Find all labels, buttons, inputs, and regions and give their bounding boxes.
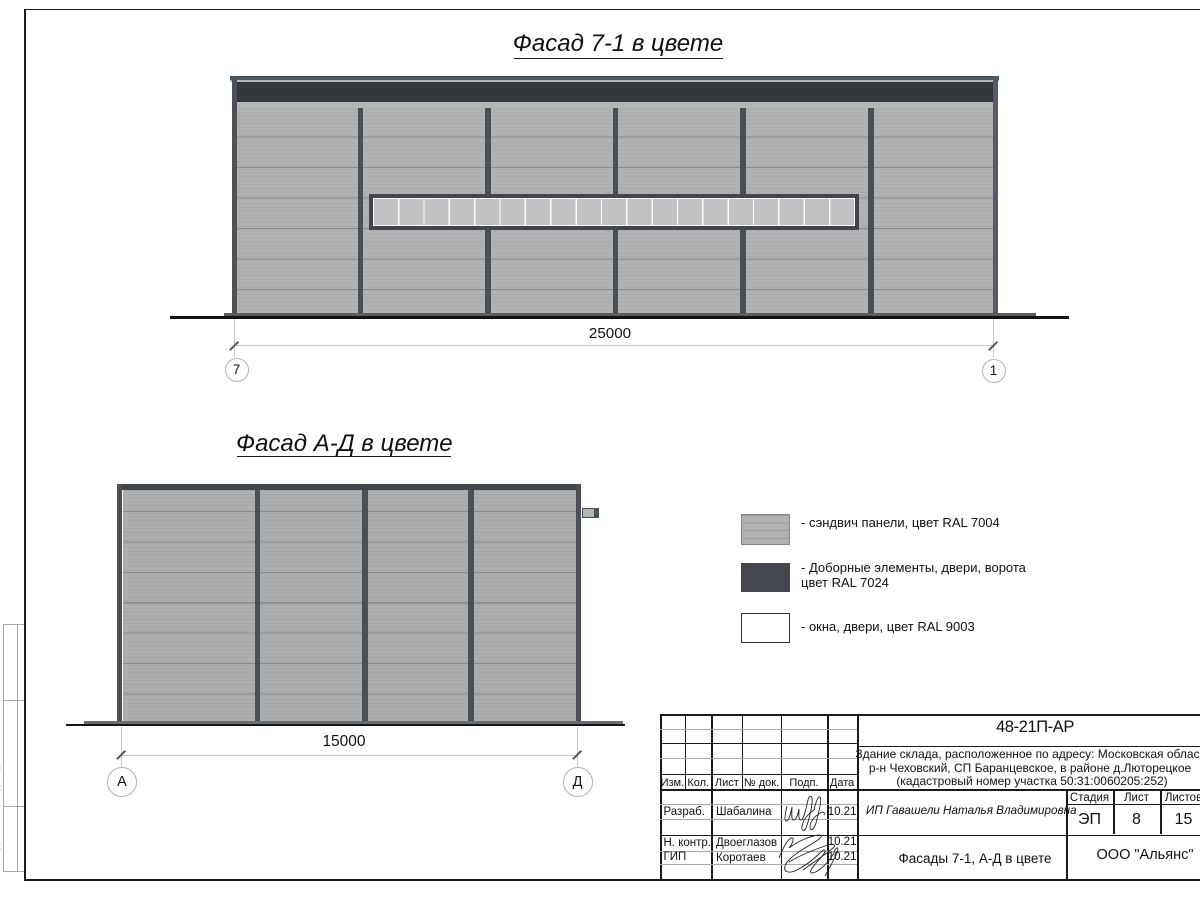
svg-text:Подп. и дата: Подп. и дата <box>0 753 1 801</box>
svg-text:Взам. инв. №: Взам. инв. № <box>0 670 1 720</box>
svg-text:Инв. № подл.: Инв. № подл. <box>0 837 1 887</box>
